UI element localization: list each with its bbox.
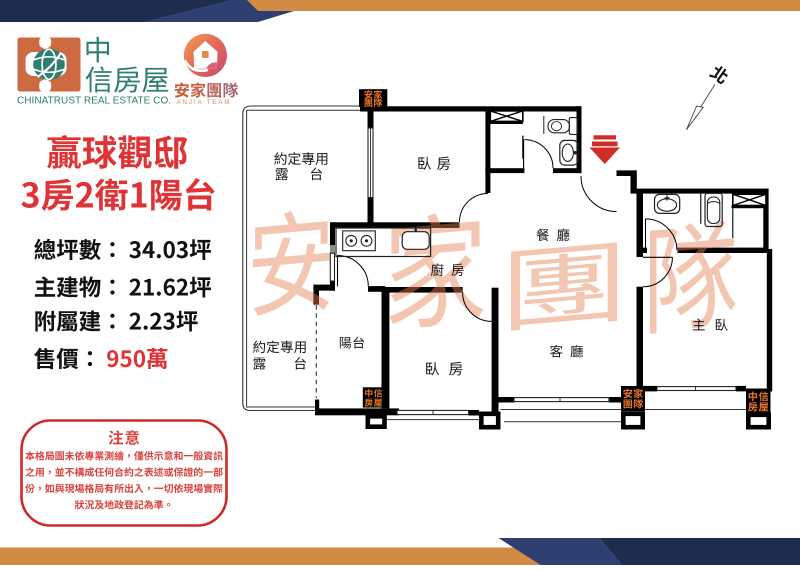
svg-text:CHINATRUST REAL ESTATE CO.: CHINATRUST REAL ESTATE CO. — [17, 95, 171, 106]
svg-text:ANJIA TEAM: ANJIA TEAM — [177, 99, 232, 106]
